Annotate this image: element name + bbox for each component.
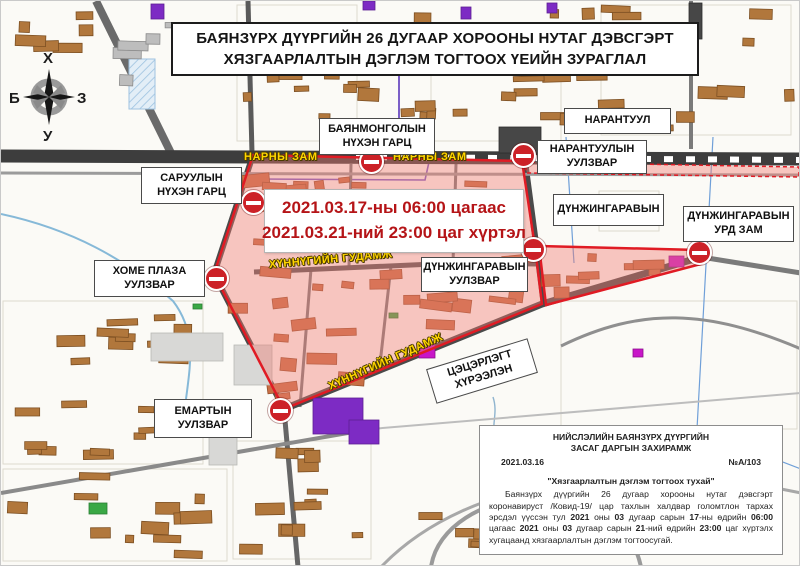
label-dunjingarav-south-road: ДҮНЖИНГАРАВЫН УРД ЗАМ — [683, 206, 794, 242]
compass-south-label: У — [43, 128, 53, 145]
map-screenshot: Х У Б З НАРНЫ ЗАМ НАРНЫ ЗАМ ХҮННҮГИЙН ГУ… — [0, 0, 800, 566]
no-entry-icon — [268, 398, 293, 423]
no-entry-icon — [204, 266, 229, 291]
label-bayanmongol-underpass: БАЯНМОНГОЛЫН НҮХЭН ГАРЦ — [319, 118, 435, 155]
decree-date: 2021.03.16 — [501, 457, 544, 468]
label-home-plaza-junction: ХОМЕ ПЛАЗА УУЛЗВАР — [94, 260, 205, 297]
decree-body: Баянзүрх дүүргийн 26 дугаар хорооны нута… — [489, 489, 773, 546]
map-title-line1: БАЯНЗҮРХ ДҮҮРГИЙН 26 ДУГААР ХОРООНЫ НУТА… — [179, 28, 691, 49]
restriction-period-line1: 2021.03.17-ны 06:00 цагаас — [282, 196, 506, 221]
label-saruul-underpass: САРУУЛЫН НҮХЭН ГАРЦ — [141, 167, 242, 204]
restriction-period-line2: 2021.03.21-ний 23:00 цаг хүртэл — [262, 221, 526, 246]
no-entry-icon — [241, 190, 266, 215]
compass-east-label: З — [77, 90, 86, 107]
restricted-zone-right-lobe — [539, 246, 701, 305]
label-narantuul-junction: НАРАНТУУЛЫН УУЛЗВАР — [537, 140, 647, 174]
label-narantuul: НАРАНТУУЛ — [564, 108, 671, 134]
compass-west-label: Б — [9, 90, 20, 107]
label-dunjingarav: ДҮНЖИНГАРАВЫН — [553, 194, 664, 226]
no-entry-icon — [511, 143, 536, 168]
label-emart-junction: ЕМАРТЫН УУЛЗВАР — [154, 399, 252, 438]
decree-note: НИЙСЛЭЛИЙН БАЯНЗҮРХ ДҮҮРГИЙН ЗАСАГ ДАРГЫ… — [479, 425, 783, 555]
street-label-narny-zam-1: НАРНЫ ЗАМ — [244, 151, 318, 163]
decree-subject: "Хязгаарлалтын дэглэм тогтоох тухай" — [489, 476, 773, 487]
compass-rose: Х У Б З — [9, 50, 86, 145]
map-title: БАЯНЗҮРХ ДҮҮРГИЙН 26 ДУГААР ХОРООНЫ НУТА… — [171, 22, 699, 76]
decree-number: №А/103 — [728, 457, 761, 468]
compass-north-label: Х — [43, 50, 53, 67]
label-dunjingarav-junction: ДҮНЖИНГАРАВЫН УУЛЗВАР — [421, 257, 528, 292]
restriction-period-banner: 2021.03.17-ны 06:00 цагаас 2021.03.21-ни… — [264, 189, 524, 253]
map-title-line2: ХЯЗГААРЛАЛТЫН ДЭГЛЭМ ТОГТООХ ҮЕИЙН ЗУРАГ… — [179, 49, 691, 70]
decree-header-line2: ЗАСАГ ДАРГЫН ЗАХИРАМЖ — [489, 443, 773, 454]
no-entry-icon — [687, 240, 712, 265]
decree-header-line1: НИЙСЛЭЛИЙН БАЯНЗҮРХ ДҮҮРГИЙН — [489, 432, 773, 443]
